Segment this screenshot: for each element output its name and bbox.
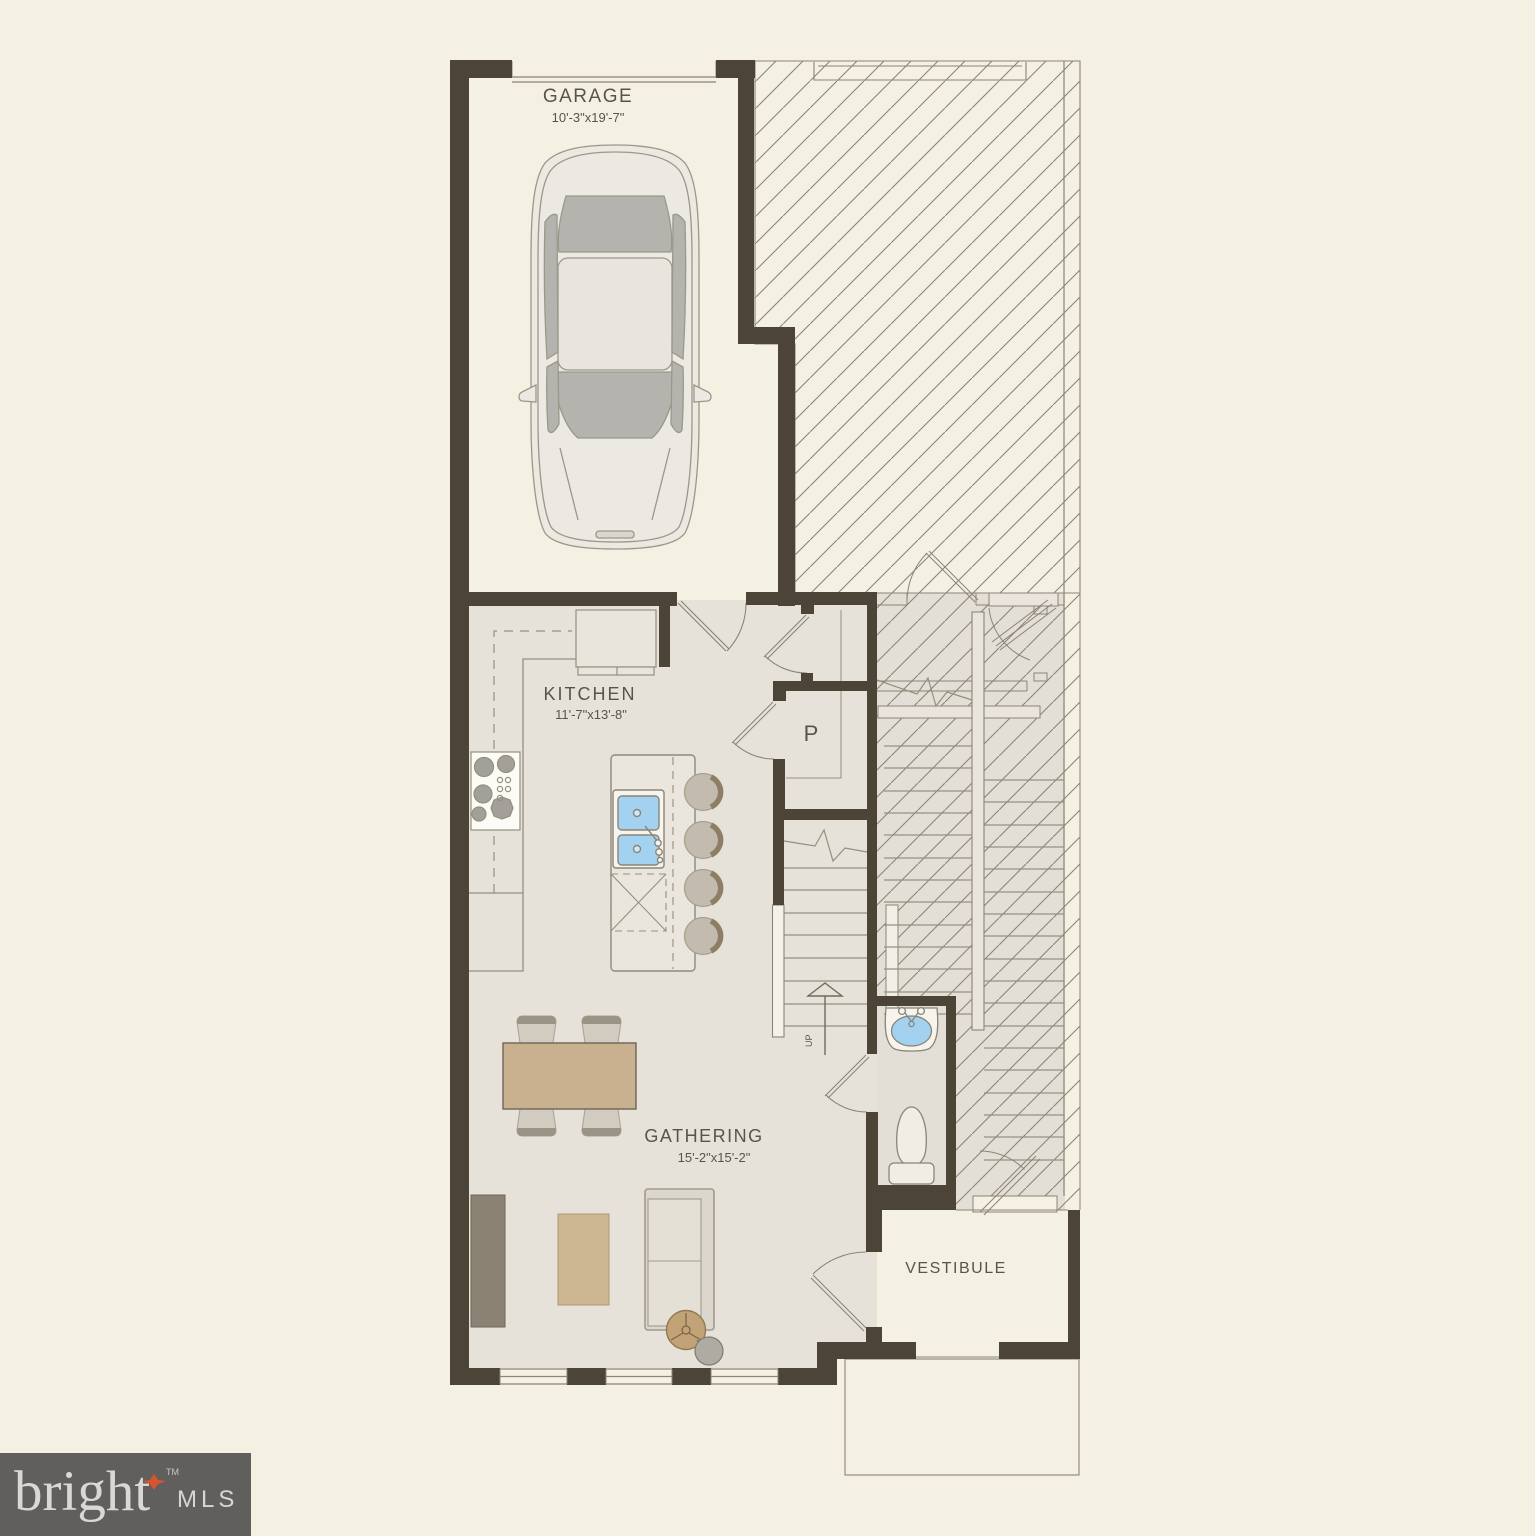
svg-text:UP: UP bbox=[804, 1034, 814, 1047]
svg-text:MLS: MLS bbox=[177, 1486, 238, 1513]
svg-text:KITCHEN: KITCHEN bbox=[543, 684, 636, 704]
svg-text:15'-2"x15'-2": 15'-2"x15'-2" bbox=[678, 1150, 751, 1165]
svg-text:P: P bbox=[804, 721, 819, 746]
svg-text:GARAGE: GARAGE bbox=[543, 86, 633, 107]
svg-text:TM: TM bbox=[166, 1467, 179, 1477]
svg-text:GATHERING: GATHERING bbox=[644, 1126, 763, 1146]
svg-text:11'-7"x13'-8": 11'-7"x13'-8" bbox=[555, 707, 627, 722]
svg-text:bright: bright bbox=[14, 1460, 150, 1523]
svg-text:VESTIBULE: VESTIBULE bbox=[905, 1260, 1007, 1277]
svg-text:10'-3"x19'-7": 10'-3"x19'-7" bbox=[552, 110, 625, 125]
